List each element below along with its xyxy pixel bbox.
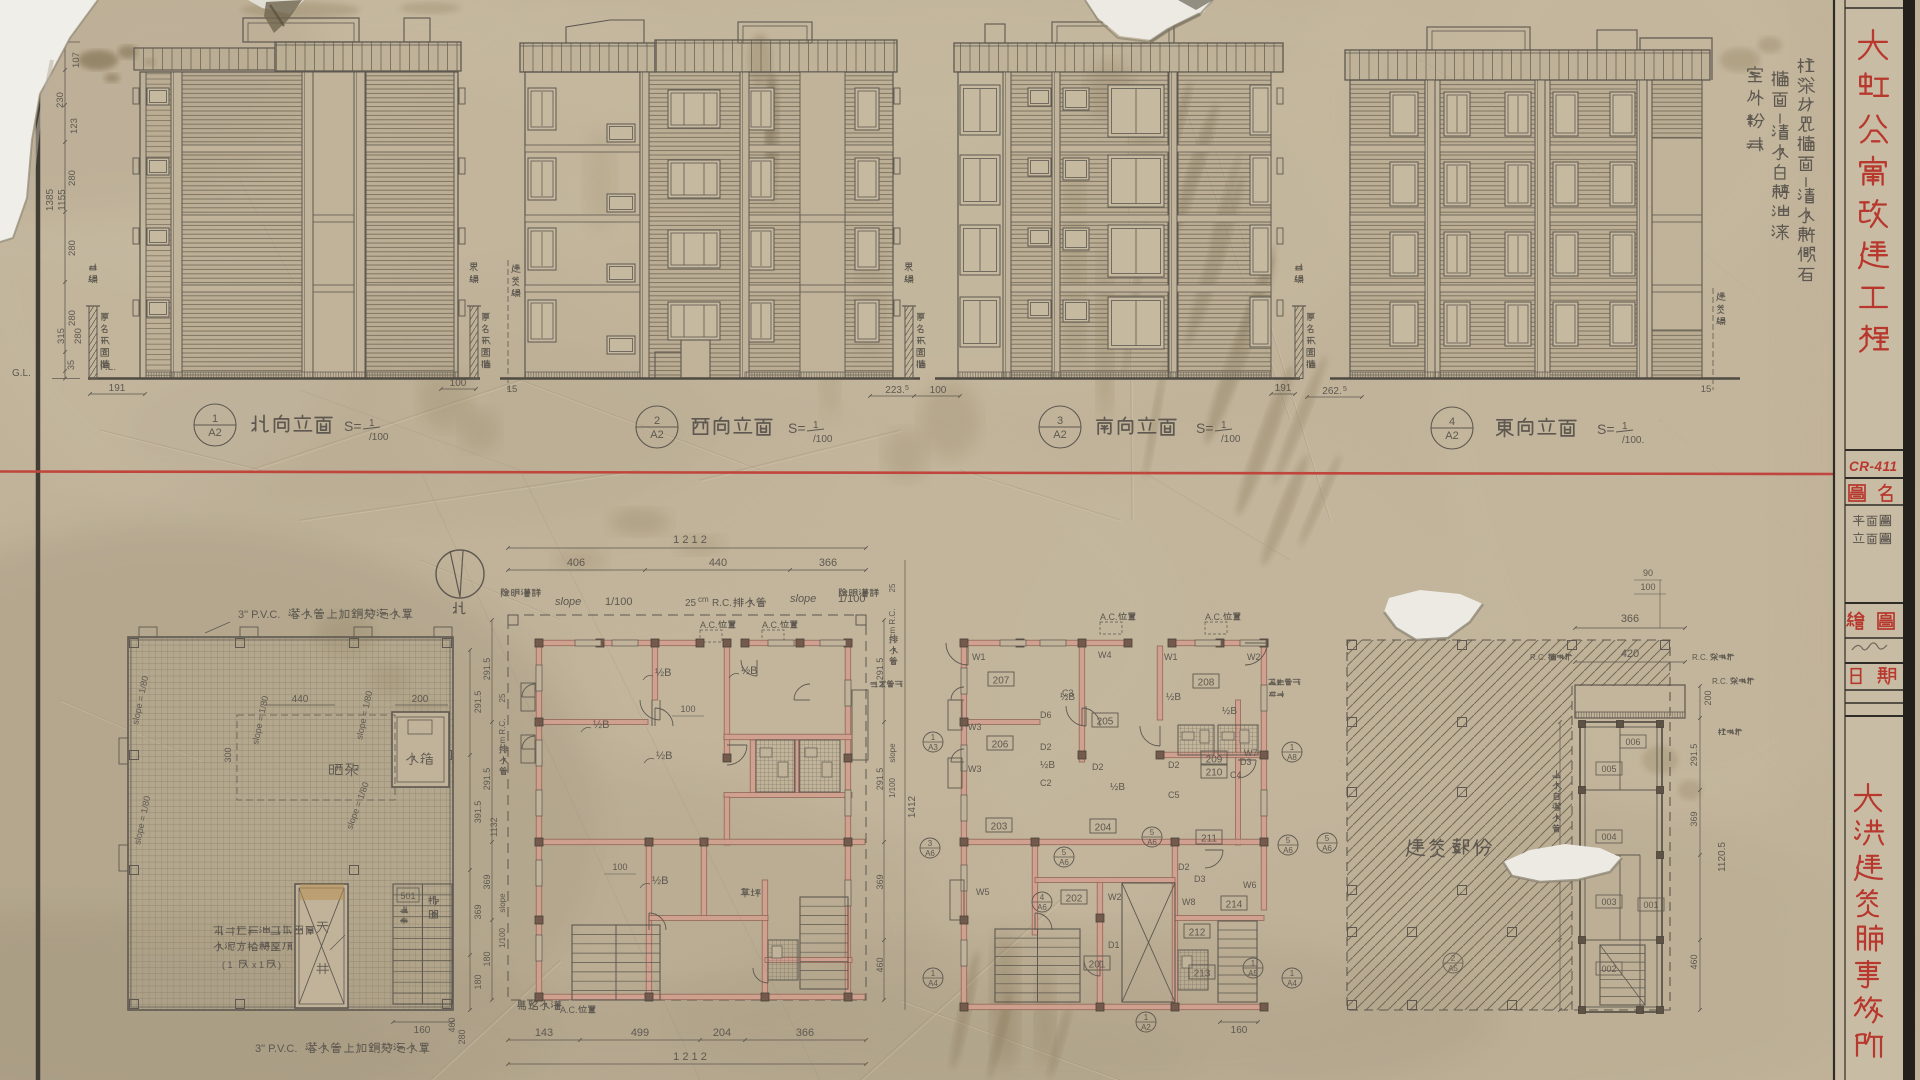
- svg-text:CR-411: CR-411: [1849, 459, 1898, 474]
